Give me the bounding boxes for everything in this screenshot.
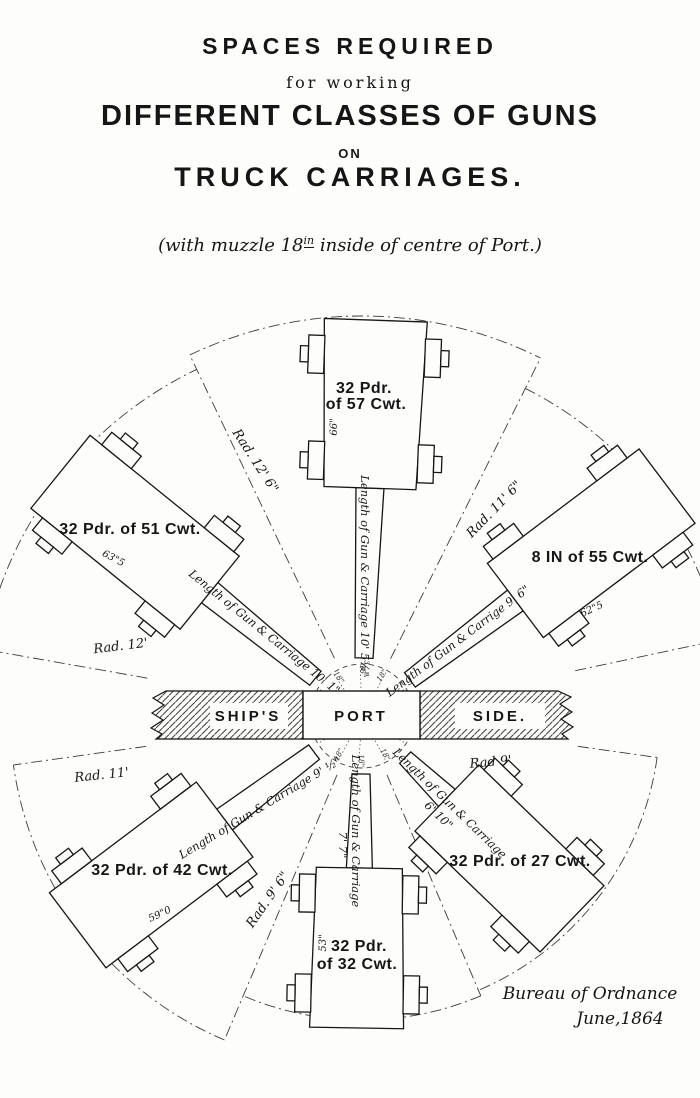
credit-line-1: Bureau of Ordnance — [490, 984, 690, 1004]
wheel-cap — [441, 351, 450, 367]
truck-wheel — [403, 976, 420, 1014]
gun-length-label: Length of Gun & Carriage — [349, 754, 363, 908]
truck-wheel — [307, 441, 324, 480]
wheel-cap — [300, 452, 309, 468]
gun-length-label: Length of Gun & Carriage 10' 1" — [185, 566, 343, 697]
sector-boundary-line — [13, 746, 146, 765]
sector-boundary-line — [578, 746, 657, 757]
muzzle-inset-label: 18" — [374, 667, 389, 683]
wheel-cap — [287, 985, 295, 1001]
sector-boundary-line — [0, 649, 147, 678]
gun-radius-label: Rad. 12' 6" — [228, 426, 281, 496]
ship-side-band: SHIP'SPORTSIDE. — [151, 691, 573, 739]
truck-wheel — [402, 876, 419, 914]
ordnance-plate: SPACES REQUIRED for working DIFFERENT CL… — [0, 0, 700, 1098]
gun-name-label: 32 Pdr. of 27 Cwt. — [449, 853, 590, 870]
gun-spaces-diagram: 18"18"18"18"18"18" SHIP'SPORTSIDE. 32 Pd… — [0, 0, 700, 1098]
gun-width-label: 53" — [318, 934, 329, 951]
gun-name-label: of 32 Cwt. — [317, 956, 398, 973]
wheel-cap — [433, 456, 442, 472]
gun-name-label: 32 Pdr. of 51 Cwt. — [59, 521, 200, 538]
port-label: PORT — [334, 708, 388, 725]
gun-name-label: 32 Pdr. of 42 Cwt. — [91, 862, 232, 879]
gun-name-label: of 57 Cwt. — [326, 396, 407, 413]
gun-length-label: Length of Gun & Carriage 10' 5¾" — [358, 474, 372, 677]
gun-width-label: 66" — [329, 418, 340, 435]
truck-wheel — [308, 335, 325, 374]
ship-band-label-left: SHIP'S — [215, 708, 282, 725]
sector-boundary-line — [575, 640, 700, 671]
gun-radius-label: Rad. 12' — [92, 636, 149, 658]
truck-wheel — [295, 974, 312, 1012]
sector-boundary-line — [190, 355, 335, 658]
gun-name-label: 32 Pdr. — [336, 380, 392, 397]
wheel-cap — [419, 987, 427, 1003]
wheel-cap — [300, 346, 309, 362]
wheel-cap — [291, 885, 299, 901]
gun-name-label: 8 IN of 55 Cwt. — [532, 549, 649, 566]
gun-radius-label: Rad. 11' — [73, 765, 130, 786]
ship-band-label-right: SIDE. — [473, 708, 527, 725]
gun-length-label: Length of Gun & Carrige 9' 6" — [382, 582, 532, 700]
credit-line-2: June,1864 — [520, 1009, 700, 1029]
truck-wheel — [417, 445, 434, 484]
gun-name-label: 32 Pdr. — [331, 938, 387, 955]
truck-wheel — [299, 874, 316, 912]
truck-wheel — [424, 339, 441, 378]
wheel-cap — [418, 887, 426, 903]
gun-length-label: 7' 7" — [336, 832, 350, 859]
